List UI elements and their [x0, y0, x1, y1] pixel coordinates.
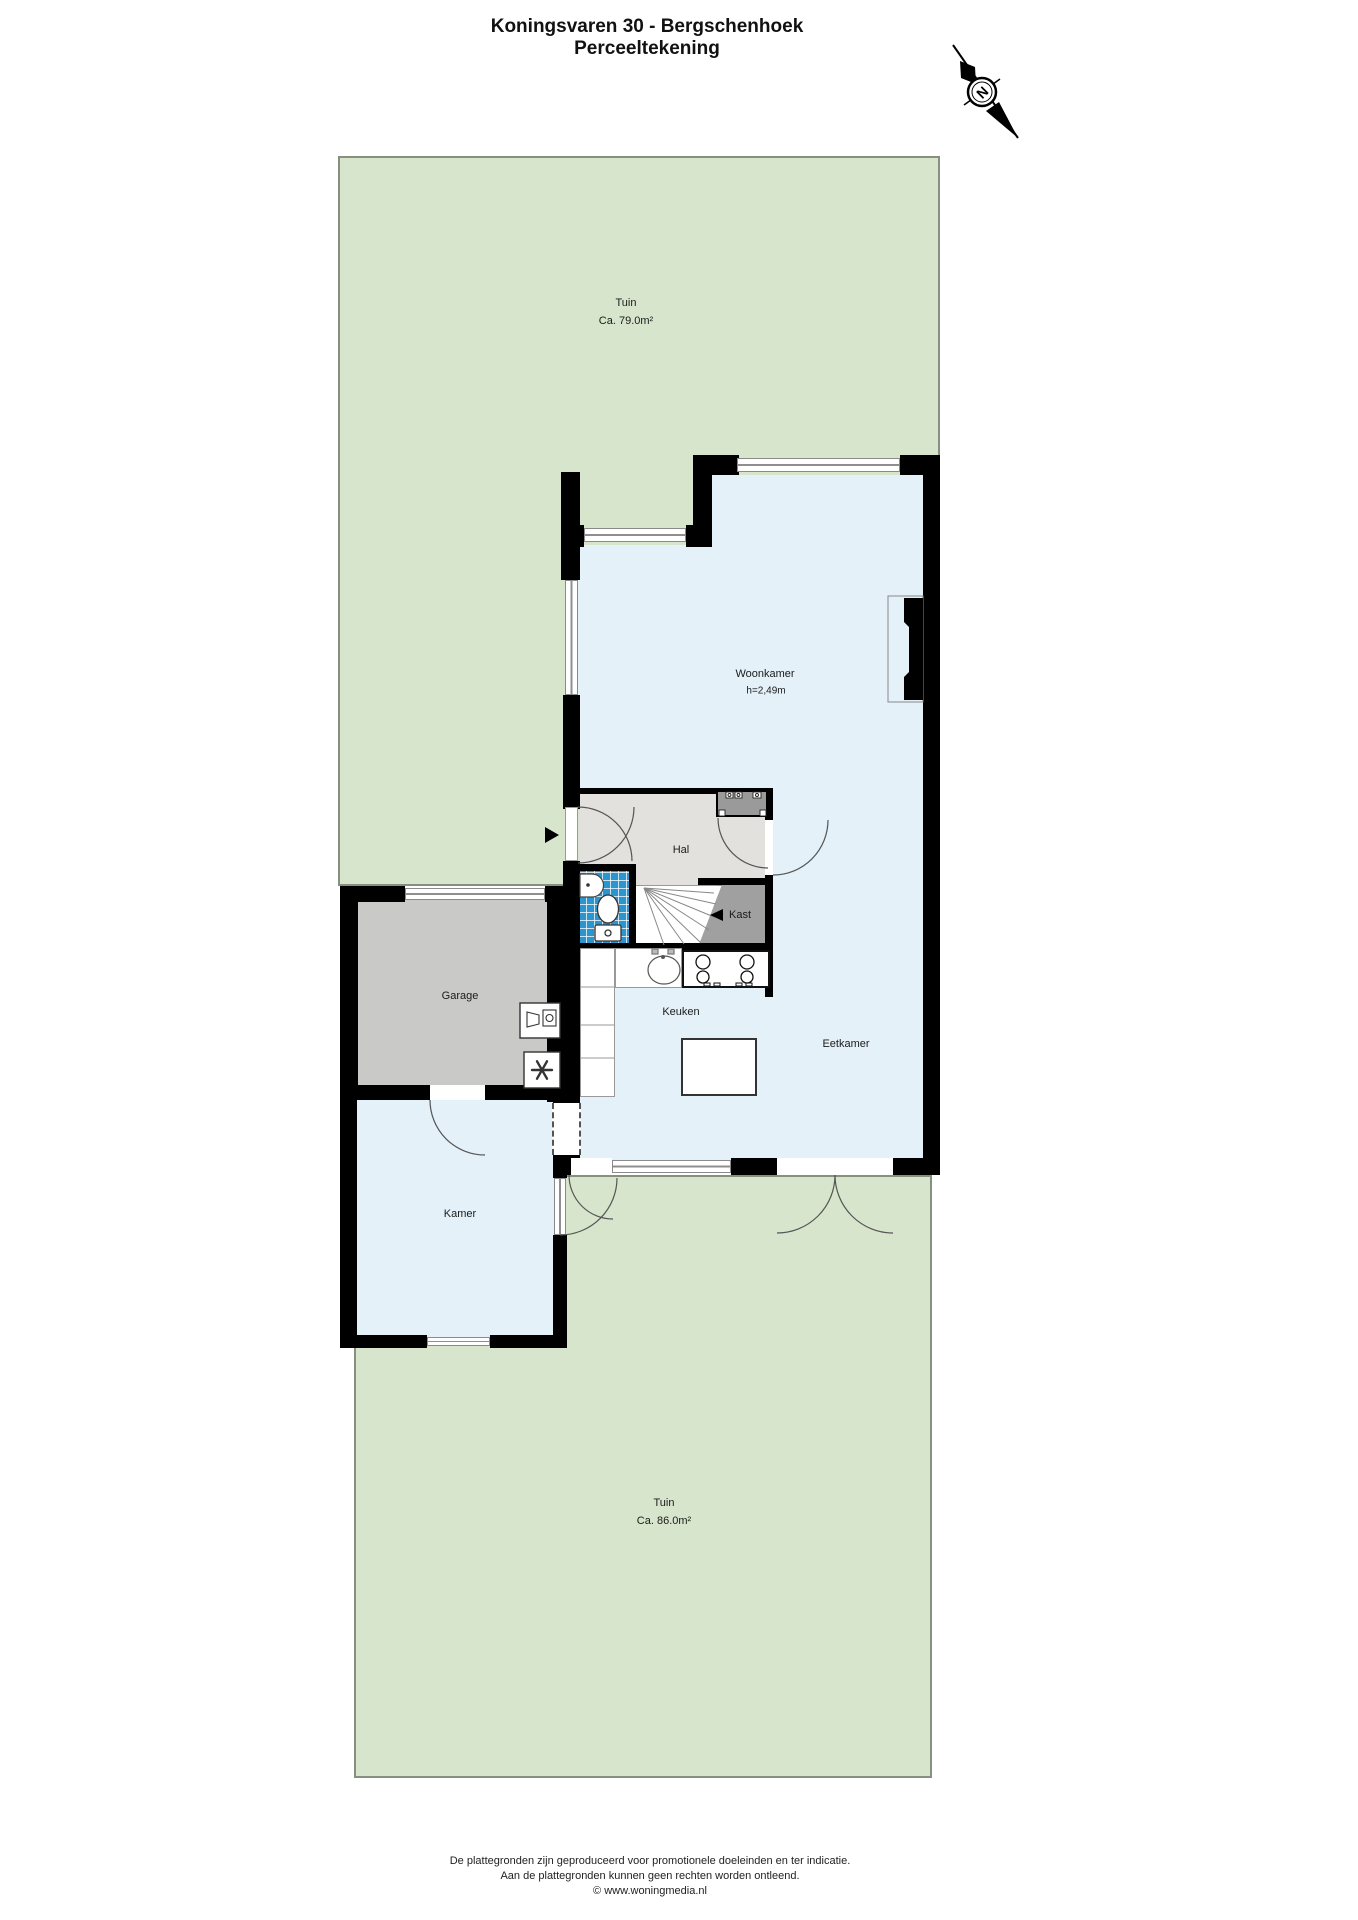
wall — [893, 1158, 940, 1175]
door-opening-garage-kamer — [430, 1085, 485, 1100]
door-opening-eetkamer-garden — [571, 1158, 612, 1175]
wall — [686, 525, 712, 547]
wall — [340, 1335, 427, 1348]
label-tuin-top: Tuin — [616, 297, 637, 309]
door-opening-hal-woonkamer — [765, 820, 773, 875]
wall — [698, 878, 773, 885]
wall — [731, 1158, 777, 1175]
copyright-line: © www.woningmedia.nl — [593, 1885, 707, 1897]
compass-icon: N — [940, 35, 1030, 147]
wall — [490, 1335, 567, 1348]
window-eetkamer-south — [612, 1160, 731, 1173]
front-door — [565, 807, 578, 861]
label-kast: Kast — [729, 909, 751, 921]
label-kamer: Kamer — [444, 1208, 476, 1220]
garage-door — [405, 888, 545, 900]
wall — [340, 1085, 357, 1348]
garden-door-kamer — [554, 1178, 566, 1235]
wall — [765, 875, 773, 997]
kitchen-cabinet-column — [580, 948, 615, 1097]
disclaimer-line-1: De plattegronden zijn geproduceerd voor … — [450, 1855, 851, 1867]
label-woonkamer: Woonkamer — [735, 668, 794, 680]
door-opening-french-doors — [777, 1158, 893, 1175]
label-keuken: Keuken — [662, 1006, 699, 1018]
wall — [553, 1235, 567, 1335]
room-wc — [578, 868, 634, 945]
open-passage-kamer-keuken — [552, 1103, 581, 1155]
window-woonkamer-north — [737, 458, 900, 472]
room-woonkamer-upper — [712, 475, 923, 547]
meter-closet — [716, 790, 768, 817]
wall — [547, 886, 563, 1102]
wall — [578, 864, 636, 871]
wall — [629, 868, 636, 945]
page-subtitle: Perceeltekening — [574, 38, 720, 60]
window-woonkamer-step — [584, 528, 686, 542]
label-garage: Garage — [442, 990, 479, 1002]
label-tuin-top-area: Ca. 79.0m² — [599, 315, 653, 327]
label-hal: Hal — [673, 844, 690, 856]
kitchen-sink-counter — [615, 948, 682, 988]
window-kamer-south — [427, 1337, 490, 1346]
wall — [553, 1155, 567, 1178]
wall — [340, 886, 358, 1100]
label-tuin-bottom: Tuin — [654, 1497, 675, 1509]
wall — [563, 695, 580, 809]
disclaimer-line-2: Aan de plattegronden kunnen geen rechten… — [500, 1870, 799, 1882]
kitchen-island — [681, 1038, 757, 1096]
wall — [561, 472, 580, 580]
window-woonkamer-west — [565, 580, 578, 695]
label-woonkamer-height: h=2,49m — [746, 686, 785, 697]
floor-plan: Koningsvaren 30 - Bergschenhoek Perceelt… — [0, 0, 1358, 1920]
wall — [563, 888, 580, 1103]
wall — [712, 455, 739, 475]
wall — [923, 455, 940, 1175]
label-tuin-bottom-area: Ca. 86.0m² — [637, 1515, 691, 1527]
page-title: Koningsvaren 30 - Bergschenhoek — [491, 16, 804, 38]
wall — [553, 1085, 567, 1103]
label-eetkamer: Eetkamer — [822, 1038, 869, 1050]
